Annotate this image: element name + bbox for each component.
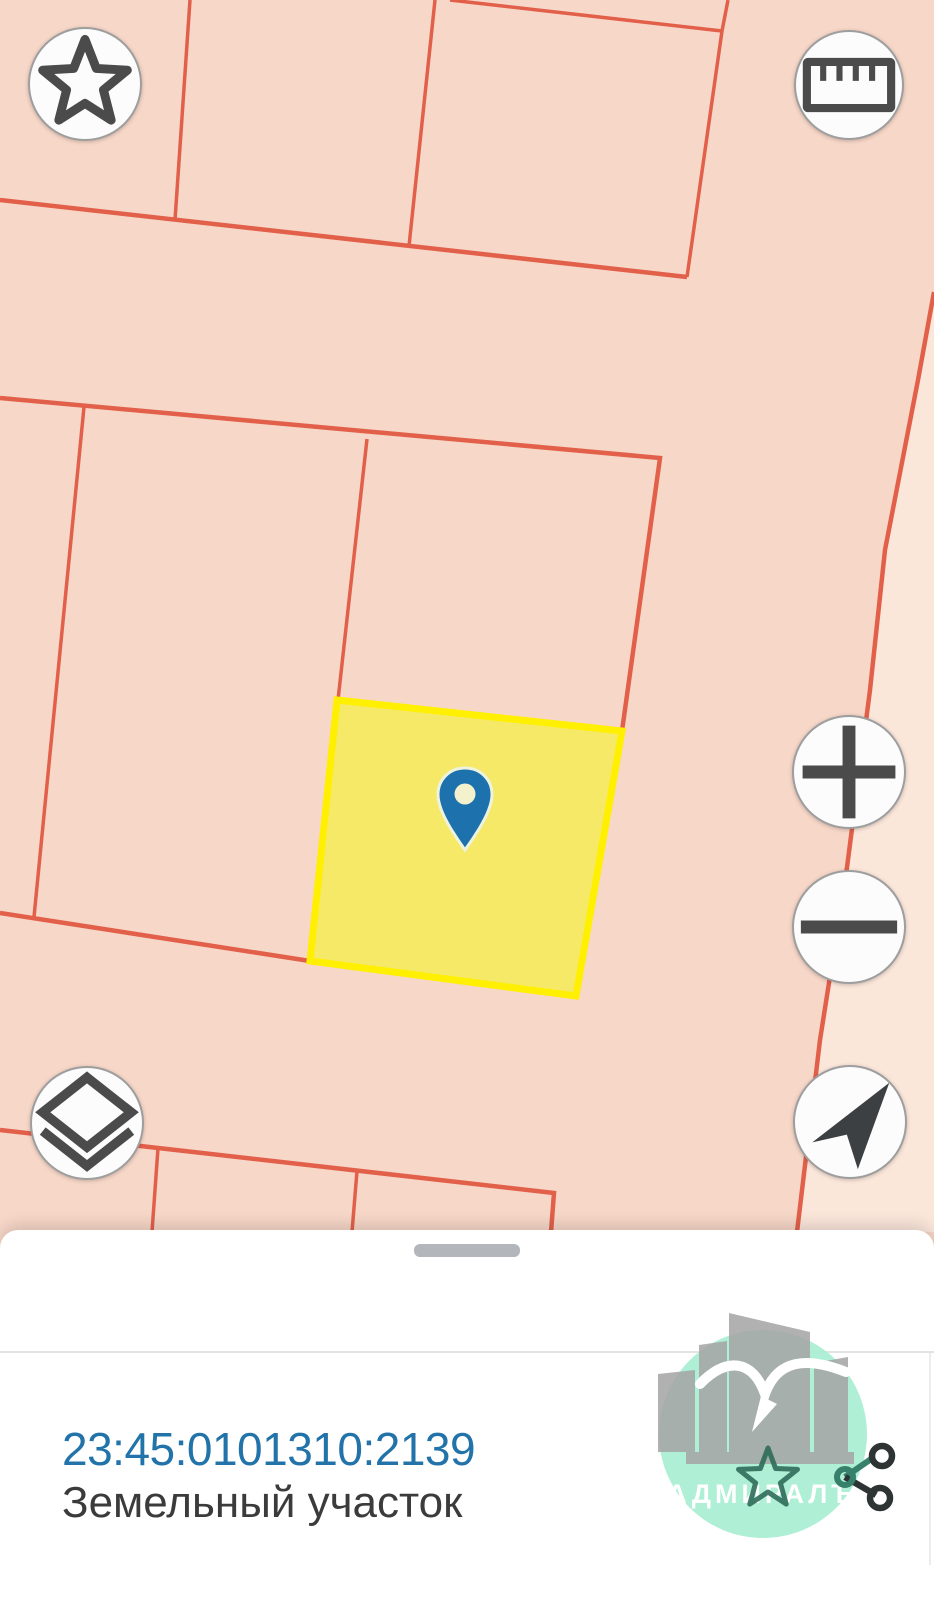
watermark-logo: АДМИРАЛЪ — [634, 1290, 934, 1565]
watermark-text: АДМИРАЛЪ — [667, 1479, 859, 1509]
favorites-button[interactable] — [28, 27, 142, 141]
object-type-label: Земельный участок — [62, 1478, 462, 1528]
bottom-sheet: 23:45:0101310:2139 Земельный участок АДМ… — [0, 1230, 934, 1600]
measure-button[interactable] — [794, 30, 904, 140]
watermark-circle — [659, 1330, 867, 1538]
cadastral-number-link[interactable]: 23:45:0101310:2139 — [62, 1424, 475, 1474]
watermark-seagull-icon — [700, 1363, 846, 1432]
watermark-buildings-icon — [658, 1313, 854, 1464]
map-canvas[interactable] — [0, 0, 934, 1232]
sheet-drag-handle[interactable] — [414, 1244, 520, 1257]
sheet-divider — [0, 1351, 934, 1353]
layers-button[interactable] — [30, 1066, 144, 1180]
locate-me-button[interactable] — [793, 1065, 907, 1179]
sheet-edge-line — [929, 1353, 931, 1565]
watermark-share-icon — [837, 1446, 892, 1508]
app-screen: 23:45:0101310:2139 Земельный участок АДМ… — [0, 0, 934, 1600]
watermark-star-icon — [739, 1448, 798, 1504]
